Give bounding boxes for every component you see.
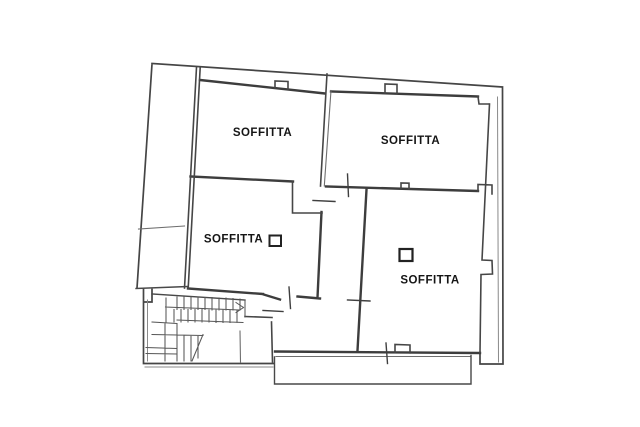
floor-plan-page: SOFFITTA SOFFITTA SOFFITTA SOFFITTA: [0, 0, 640, 427]
room-labels: SOFFITTA SOFFITTA SOFFITTA SOFFITTA: [204, 127, 460, 287]
room-label-middle-left: SOFFITTA: [204, 234, 263, 246]
interior-walls: [136, 68, 493, 363]
room-partition-walls: [188, 80, 480, 353]
fixture-square-bottom-right: [400, 249, 413, 261]
staircase: [146, 297, 245, 361]
room-label-bottom-right: SOFFITTA: [400, 275, 459, 287]
stair-treads: [146, 297, 245, 361]
balcony-outline: [275, 356, 472, 385]
room-label-top-right: SOFFITTA: [381, 135, 440, 147]
secondary-walls: [185, 68, 493, 363]
fixture-square-middle-left: [270, 236, 282, 247]
fixture-symbols: [270, 236, 413, 262]
door-opening-marks: [263, 174, 388, 364]
balcony-lines: [275, 356, 472, 385]
door-tick-lines: [263, 174, 388, 364]
floor-plan-drawing: SOFFITTA SOFFITTA SOFFITTA SOFFITTA: [0, 0, 640, 427]
room-label-top-left: SOFFITTA: [233, 127, 292, 139]
